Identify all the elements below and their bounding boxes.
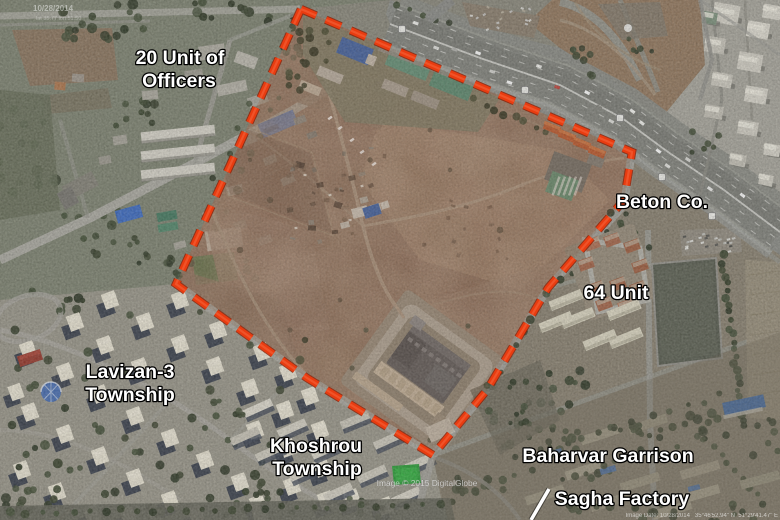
svg-text:20 Unit of: 20 Unit of — [136, 47, 225, 69]
svg-text:64 Unit: 64 Unit — [583, 282, 649, 304]
svg-text:lat 35.77 lon 51.50: lat 35.77 lon 51.50 — [36, 16, 81, 22]
svg-text:Image Date: 10/28/2014 35°46: Image Date: 10/28/2014 35°46'52.94" N 51… — [626, 513, 778, 519]
svg-text:Township: Township — [85, 384, 175, 406]
svg-text:Sagha Factory: Sagha Factory — [555, 488, 690, 510]
svg-text:Image © 2015 DigitalGlobe: Image © 2015 DigitalGlobe — [377, 478, 478, 488]
svg-text:Khoshrou: Khoshrou — [270, 435, 362, 457]
svg-text:Beton Co.: Beton Co. — [616, 191, 708, 213]
svg-text:10/28/2014: 10/28/2014 — [33, 4, 74, 13]
svg-text:Lavizan-3: Lavizan-3 — [86, 361, 175, 383]
svg-text:Baharvar Garrison: Baharvar Garrison — [522, 445, 693, 467]
svg-text:Township: Township — [272, 458, 362, 480]
svg-text:Officers: Officers — [142, 70, 216, 92]
